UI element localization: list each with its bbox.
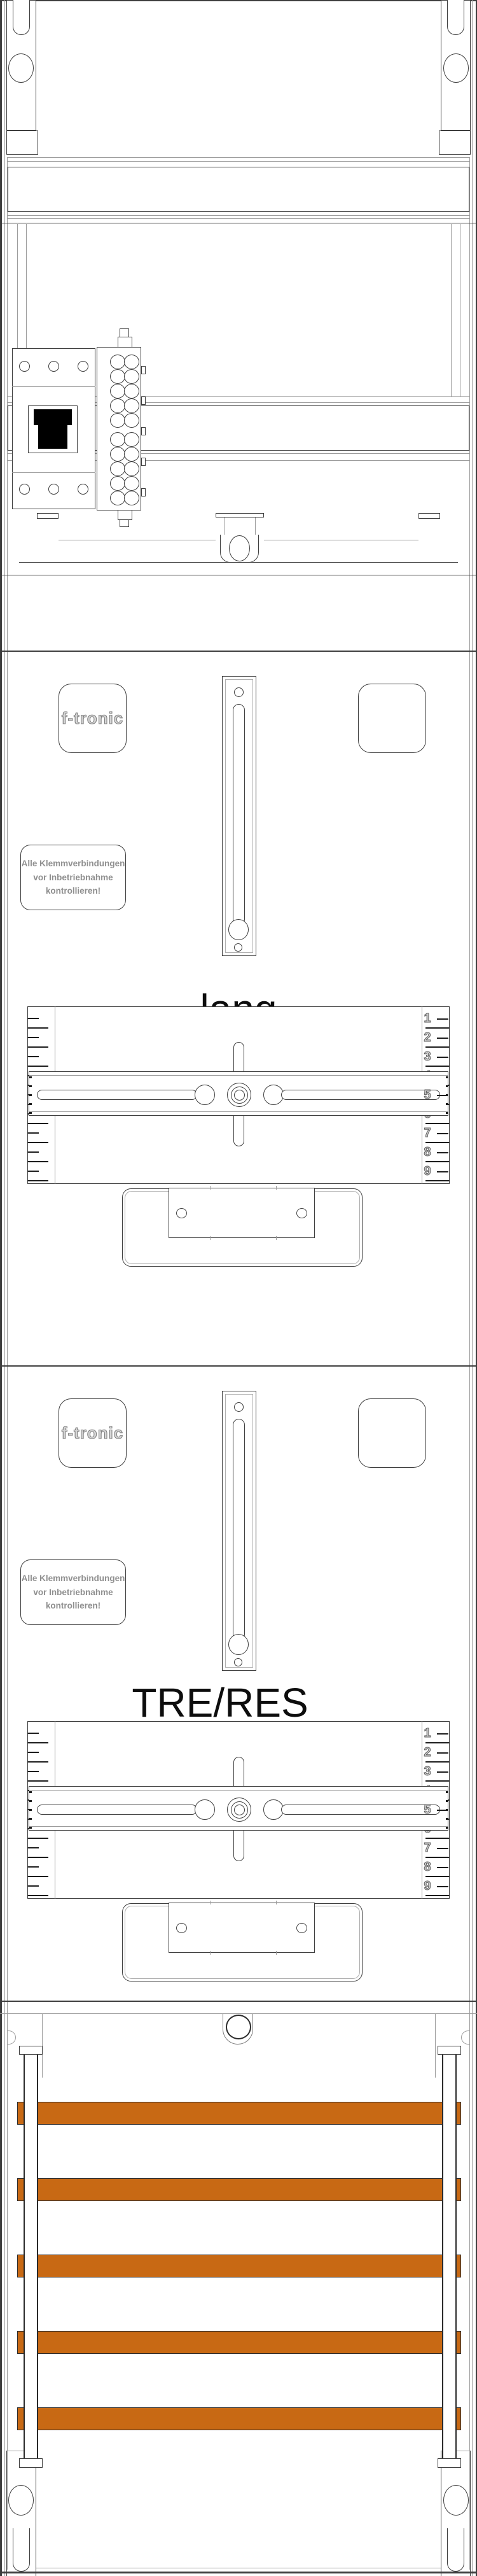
ruler-tick xyxy=(437,1171,448,1172)
terminal-strip-bottom-tab xyxy=(120,519,129,527)
center-screw xyxy=(234,1090,245,1101)
ruler-tick xyxy=(425,1895,450,1896)
clamp-hole xyxy=(124,369,139,384)
index-dot xyxy=(446,1827,448,1829)
strip-side-tab xyxy=(141,397,146,405)
strip-screw-hole xyxy=(234,1402,244,1412)
ruler-tick xyxy=(27,1885,39,1887)
index-dot xyxy=(446,1094,448,1096)
ruler-number: 7 xyxy=(420,1840,435,1855)
ruler-tick xyxy=(425,1876,450,1877)
strip-small-hole xyxy=(234,943,242,952)
clamp-hole xyxy=(124,476,139,491)
ruler-tick xyxy=(425,1066,450,1067)
ruler-number: 5 xyxy=(420,1087,435,1102)
index-dot xyxy=(29,1818,32,1820)
busbar-panel-edge xyxy=(435,2014,436,2078)
ruler-tick xyxy=(425,1742,450,1743)
ruler-tick xyxy=(437,1152,448,1153)
index-dot xyxy=(446,1103,448,1105)
slider-slot-right xyxy=(281,1805,440,1815)
clamp-hole xyxy=(124,432,139,447)
ruler-tick xyxy=(425,1027,450,1029)
jack-opening xyxy=(34,409,72,425)
cabinet-top-edge xyxy=(0,0,477,1)
bottom-panel-line xyxy=(36,2568,441,2568)
f-tronic-logo-text: f-tronic xyxy=(59,1423,126,1443)
cover-plate-hole xyxy=(176,1923,187,1933)
ruler-tick xyxy=(437,1848,448,1849)
shelf-edge xyxy=(0,575,477,575)
clamp-hole xyxy=(110,384,125,398)
ruler-tick xyxy=(27,1761,48,1763)
cover-plate-hole xyxy=(176,1208,187,1218)
top-left-rail-foot xyxy=(6,130,38,155)
ruler-number: 8 xyxy=(420,1144,435,1160)
section-divider xyxy=(0,651,477,652)
strip-keyhole xyxy=(228,919,249,940)
ruler-tick xyxy=(27,1876,48,1877)
strip-side-tab xyxy=(141,427,146,435)
ruler-tick xyxy=(27,1018,39,1019)
shelf-left-tab xyxy=(37,513,59,519)
bottom-left-rail-edge xyxy=(6,2451,7,2576)
cabinet-right-inner-edge xyxy=(472,0,473,2576)
slider-slot-right xyxy=(281,1090,440,1100)
carrier-a-base-line xyxy=(0,223,477,223)
slider-crossbar-line xyxy=(29,1075,448,1076)
cover-plate-notch xyxy=(276,1901,277,1904)
index-dot xyxy=(446,1076,448,1078)
carrier-a-body xyxy=(8,167,469,212)
index-dot xyxy=(29,1112,32,1114)
carrier-a-line xyxy=(8,157,469,158)
ruler-number: 2 xyxy=(420,1745,435,1760)
cover-plate-window xyxy=(169,1903,315,1953)
index-dot xyxy=(29,1085,32,1087)
clamp-hole xyxy=(110,432,125,447)
center-hole xyxy=(226,2015,251,2039)
keyhole-support-bar xyxy=(216,513,264,517)
clamp-hole xyxy=(124,355,139,369)
clamp-hole xyxy=(110,476,125,491)
screw-hole xyxy=(48,361,59,372)
busbar xyxy=(17,2407,461,2430)
keyhole-support-stem xyxy=(255,517,256,535)
busbar-rod-cap xyxy=(438,2046,461,2055)
strip-slot xyxy=(233,704,245,926)
cabinet-left-edge xyxy=(0,0,2,2576)
index-dot xyxy=(29,1791,32,1793)
ruler-tick xyxy=(27,1046,48,1048)
ruler-number: 1 xyxy=(420,1011,435,1026)
ruler-number: 9 xyxy=(420,1164,435,1179)
bottom-right-rail-hole xyxy=(443,2485,469,2516)
cover-plate-hole xyxy=(296,1923,307,1933)
busbar-section-divider xyxy=(0,2001,477,2002)
cover-plate-notch xyxy=(276,1186,277,1190)
ruler-tick xyxy=(425,1046,450,1048)
right-side-rail xyxy=(451,224,452,397)
ruler-number: 5 xyxy=(420,1802,435,1817)
index-dot xyxy=(446,1112,448,1114)
clamp-hole xyxy=(110,461,125,476)
keyhole-support-stem xyxy=(224,517,225,535)
terminal-strip-top-tab xyxy=(118,337,132,348)
warning-line: vor Inbetriebnahme xyxy=(22,1586,125,1600)
strip-keyhole xyxy=(228,1634,249,1655)
busbar xyxy=(17,2255,461,2277)
shelf-right-tab xyxy=(418,513,440,519)
field-label: TRE/RES xyxy=(125,1679,315,1726)
clamp-hole xyxy=(110,447,125,461)
warning-line: vor Inbetriebnahme xyxy=(22,871,125,885)
left-hook xyxy=(8,2031,16,2045)
bottom-right-rail-edge xyxy=(441,2451,441,2576)
ruler-tick xyxy=(27,1132,39,1134)
blank-badge-plate xyxy=(358,1398,426,1468)
ruler-tick xyxy=(425,1180,450,1181)
screw-hole xyxy=(78,484,88,495)
cover-plate-notch xyxy=(276,1951,277,1955)
cover-plate-notch xyxy=(210,1901,211,1904)
ruler-tick xyxy=(27,1142,48,1143)
f-tronic-logo-text: f-tronic xyxy=(59,708,126,728)
screw-hole xyxy=(19,361,30,372)
ruler-tick xyxy=(437,1133,448,1134)
ruler-tick xyxy=(27,1895,48,1896)
ruler-tick xyxy=(27,1161,48,1162)
busbar xyxy=(17,2178,461,2201)
bottom-left-rail-edge xyxy=(36,2451,36,2576)
terminal-strip-bottom-tab xyxy=(118,510,132,520)
ruler-tick xyxy=(437,1771,448,1773)
keyhole-hole xyxy=(229,535,250,561)
slider-slot-left-end xyxy=(195,1799,215,1820)
screw-hole xyxy=(19,484,30,495)
ruler-tick xyxy=(27,1733,39,1734)
ruler-number: 8 xyxy=(420,1859,435,1875)
ruler-tick xyxy=(27,1780,48,1782)
ruler-tick xyxy=(27,1866,39,1868)
f-tronic-logo: f-tronic xyxy=(59,684,127,753)
ruler-tick xyxy=(437,1886,448,1887)
busbar-rod-right xyxy=(442,2055,457,2458)
panel-left-edge xyxy=(7,157,8,2570)
carrier-a-line xyxy=(8,218,469,219)
ruler-tick xyxy=(27,1180,48,1181)
clamp-hole xyxy=(124,398,139,413)
ruler-number: 3 xyxy=(420,1764,435,1779)
ruler-tick xyxy=(437,1867,448,1868)
clamp-hole xyxy=(110,398,125,413)
meter-cabinet-technical-drawing: f-tronic Alle Klemmverbindungen vor Inbe… xyxy=(0,0,477,2576)
cover-plate-hole xyxy=(296,1208,307,1218)
index-dot xyxy=(29,1076,32,1078)
clamp-hole xyxy=(124,447,139,461)
clamp-hole xyxy=(124,413,139,428)
slider-crossbar-line xyxy=(29,1826,448,1827)
right-side-rail xyxy=(460,224,460,397)
shelf-line xyxy=(264,540,418,540)
strip-side-tab xyxy=(141,458,146,466)
index-dot xyxy=(446,1800,448,1802)
warning-label: Alle Klemmverbindungen vor Inbetriebnahm… xyxy=(20,1559,126,1625)
ruler-tick xyxy=(425,1780,450,1782)
cabinet-left-inner-edge xyxy=(4,0,5,2576)
ruler-tick xyxy=(425,1142,450,1143)
ruler-tick xyxy=(27,1742,48,1743)
cover-plate-window xyxy=(169,1188,315,1238)
ruler-tick xyxy=(27,1027,48,1029)
ruler-tick xyxy=(425,1123,450,1124)
busbar-rod-left xyxy=(24,2055,38,2458)
connector-block-divider xyxy=(12,386,95,387)
ruler-tick xyxy=(27,1037,39,1038)
ruler-tick xyxy=(27,1066,48,1067)
cover-plate-notch xyxy=(210,1186,211,1190)
shelf-line xyxy=(59,540,216,540)
slider-slot-left-end xyxy=(195,1085,215,1105)
index-dot xyxy=(446,1085,448,1087)
index-dot xyxy=(29,1827,32,1829)
ruler-tick xyxy=(27,1838,48,1839)
ruler-tick xyxy=(27,1056,39,1057)
shelf-edge xyxy=(19,562,458,563)
top-right-rail-foot xyxy=(439,130,471,155)
clamp-hole xyxy=(110,413,125,428)
ruler-number: 9 xyxy=(420,1878,435,1894)
carrier-a-line xyxy=(8,215,469,216)
clamp-hole xyxy=(124,384,139,398)
screw-hole xyxy=(48,484,59,495)
top-left-rail-hole xyxy=(8,53,34,83)
ruler-tick xyxy=(425,1838,450,1839)
warning-label: Alle Klemmverbindungen vor Inbetriebnahm… xyxy=(20,845,126,910)
bottom-left-rail-slot xyxy=(13,2528,30,2572)
right-hook xyxy=(461,2031,469,2045)
strip-slot xyxy=(233,1419,245,1640)
top-right-rail-slot xyxy=(447,0,464,35)
index-dot xyxy=(446,1791,448,1793)
busbar-rod-foot xyxy=(19,2458,43,2468)
ruler-number: 7 xyxy=(420,1125,435,1141)
warning-line: kontrollieren! xyxy=(22,884,125,898)
ruler-tick xyxy=(425,1161,450,1162)
ruler-number: 1 xyxy=(420,1726,435,1741)
screw-hole xyxy=(78,361,88,372)
bottom-left-rail-hole xyxy=(8,2485,34,2516)
terminal-strip-top-tab xyxy=(120,328,129,337)
ruler-tick xyxy=(425,1761,450,1763)
f-tronic-logo: f-tronic xyxy=(59,1398,127,1468)
busbar-rod-foot xyxy=(438,2458,461,2468)
slider-slot-left xyxy=(37,1090,197,1100)
section-divider xyxy=(0,1365,477,1367)
carrier-a-line xyxy=(8,161,469,162)
jack-opening xyxy=(38,425,67,449)
ruler-tick xyxy=(27,1847,39,1848)
index-dot xyxy=(29,1800,32,1802)
slider-crossbar-line xyxy=(29,1111,448,1112)
top-right-rail-hole xyxy=(443,53,469,83)
ruler-tick xyxy=(437,1057,448,1058)
ruler-tick xyxy=(437,1038,448,1039)
strip-side-tab xyxy=(141,366,146,374)
ruler-tick xyxy=(437,1752,448,1754)
ruler-tick xyxy=(27,1752,39,1753)
ruler-tick xyxy=(27,1123,48,1124)
index-dot xyxy=(29,1809,32,1811)
busbar xyxy=(17,2331,461,2354)
clamp-hole xyxy=(110,355,125,369)
ruler-tick xyxy=(437,1018,448,1020)
index-dot xyxy=(29,1094,32,1096)
ruler-number: 2 xyxy=(420,1030,435,1045)
bottom-right-rail-edge xyxy=(470,2451,471,2576)
bottom-right-rail-slot xyxy=(447,2528,464,2572)
ruler-tick xyxy=(27,1171,39,1172)
clamp-hole xyxy=(110,369,125,384)
clamp-hole xyxy=(124,491,139,505)
strip-side-tab xyxy=(141,488,146,496)
warning-line: Alle Klemmverbindungen xyxy=(22,1572,125,1586)
slider-slot-left xyxy=(37,1805,197,1815)
panel-right-edge xyxy=(469,157,470,2570)
ruler-tick xyxy=(27,1771,39,1772)
warning-line: kontrollieren! xyxy=(22,1599,125,1613)
busbar xyxy=(17,2102,461,2125)
blank-badge-plate xyxy=(358,684,426,753)
cover-plate-notch xyxy=(276,1236,277,1240)
clamp-hole xyxy=(124,461,139,476)
index-dot xyxy=(29,1103,32,1105)
slider-crossbar-line xyxy=(29,1790,448,1791)
index-dot xyxy=(446,1809,448,1811)
busbar-rod-cap xyxy=(19,2046,43,2055)
ruler-tick xyxy=(425,1857,450,1858)
index-dot xyxy=(446,1818,448,1820)
clamp-hole xyxy=(110,491,125,505)
center-screw xyxy=(234,1805,245,1815)
connector-block-divider xyxy=(12,472,95,473)
ruler-tick xyxy=(437,1733,448,1735)
cabinet-bottom-edge xyxy=(0,2572,477,2573)
strip-small-hole xyxy=(234,1658,242,1666)
ruler-tick xyxy=(27,1151,39,1153)
ruler-number: 3 xyxy=(420,1049,435,1064)
top-left-rail-slot xyxy=(13,0,30,35)
warning-line: Alle Klemmverbindungen xyxy=(22,857,125,871)
ruler-tick xyxy=(27,1857,48,1858)
cover-plate-notch xyxy=(210,1236,211,1240)
cover-plate-notch xyxy=(210,1951,211,1955)
strip-screw-hole xyxy=(234,687,244,697)
